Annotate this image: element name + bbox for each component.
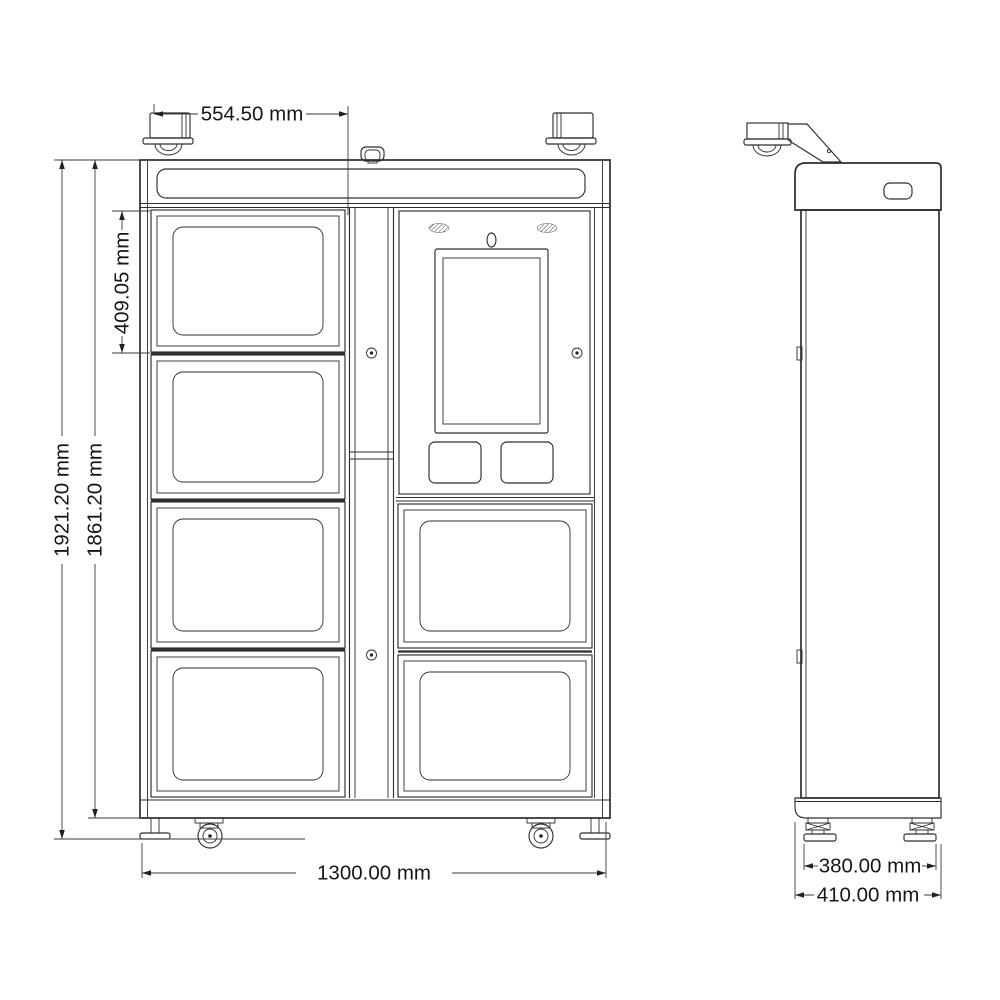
dimension-label-overall-depth: 410.00 mm (817, 884, 920, 907)
dimension-label-compartment-height: 409.05 mm (111, 232, 134, 335)
dimension-label-cabinet-height: 1861.20 mm (84, 443, 107, 557)
technical-drawing-canvas: 554.50 mm 409.05 mm 1921.20 mm (0, 0, 1000, 1000)
dimension-label-top-width: 554.50 mm (201, 103, 304, 126)
speaker-grille-right-icon (537, 224, 557, 233)
dimension-label-overall-height: 1921.20 mm (51, 443, 74, 557)
dimension-label-foot-track: 380.00 mm (819, 855, 922, 878)
cabinet-engineering-drawing: 554.50 mm 409.05 mm 1921.20 mm (0, 0, 1000, 1000)
background (0, 0, 1000, 1000)
dimension-label-overall-width: 1300.00 mm (317, 862, 431, 885)
speaker-grille-left-icon (429, 224, 449, 233)
